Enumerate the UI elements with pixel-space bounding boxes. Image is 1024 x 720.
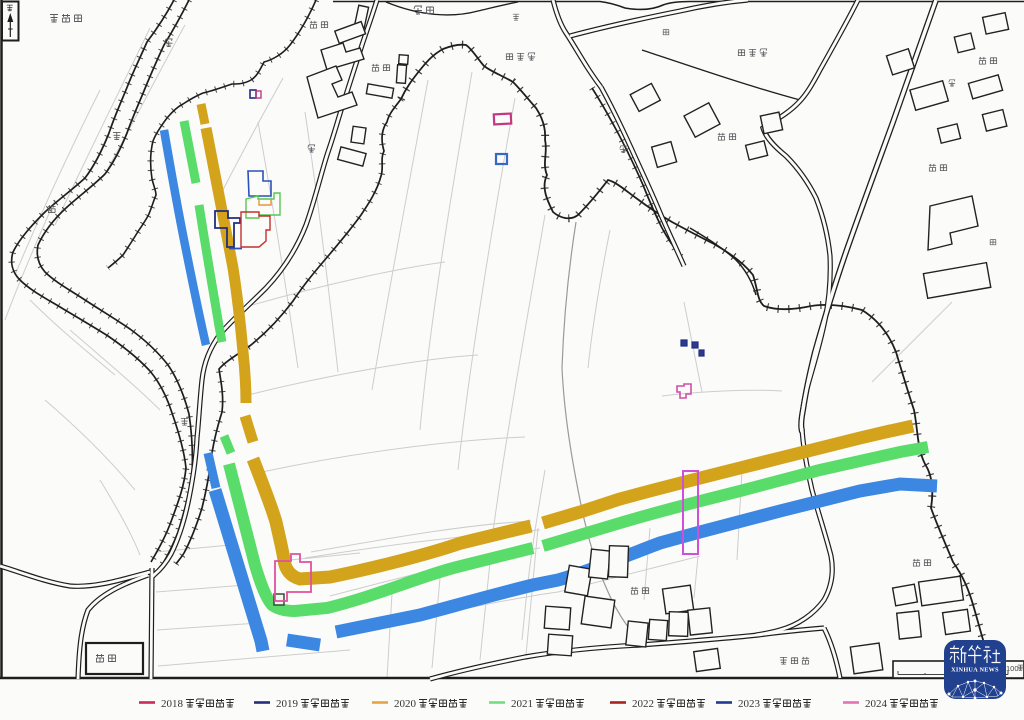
svg-text:2022: 2022 <box>632 698 654 710</box>
svg-text:2019: 2019 <box>276 698 299 710</box>
svg-text:2018: 2018 <box>161 698 184 710</box>
svg-text:XINHUA NEWS: XINHUA NEWS <box>951 667 999 674</box>
svg-text:2023: 2023 <box>738 698 761 710</box>
svg-text:2020: 2020 <box>394 698 417 710</box>
svg-text:100: 100 <box>1006 664 1019 673</box>
svg-text:2024: 2024 <box>865 698 888 710</box>
svg-text:2021: 2021 <box>511 698 533 710</box>
